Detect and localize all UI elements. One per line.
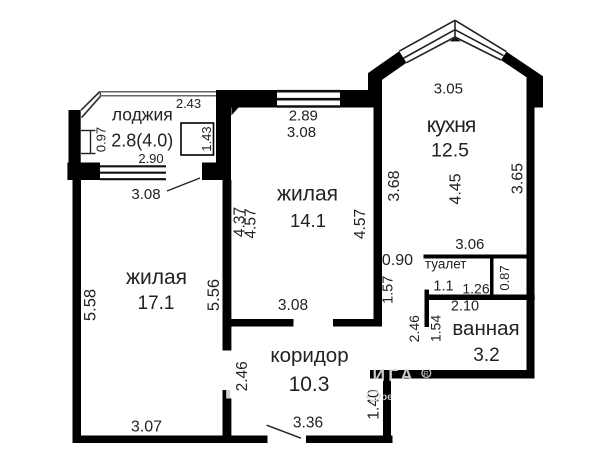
- svg-text:12.5: 12.5: [431, 140, 469, 162]
- svg-text:3.68: 3.68: [386, 170, 403, 201]
- svg-text:ванная: ванная: [452, 317, 519, 340]
- svg-text:5.56: 5.56: [205, 279, 223, 311]
- svg-text:4.45: 4.45: [448, 173, 465, 204]
- svg-text:3.2: 3.2: [473, 345, 499, 366]
- svg-text:0.87: 0.87: [497, 265, 512, 290]
- svg-text:1.54: 1.54: [428, 315, 444, 342]
- svg-text:2.89: 2.89: [289, 107, 318, 124]
- svg-text:10.3: 10.3: [289, 373, 330, 396]
- svg-text:0.97: 0.97: [94, 127, 109, 152]
- svg-text:2.8(4.0): 2.8(4.0): [111, 130, 173, 150]
- svg-text:кухня: кухня: [427, 114, 475, 137]
- svg-text:2.43: 2.43: [176, 96, 201, 111]
- svg-text:1.26: 1.26: [462, 281, 489, 297]
- svg-text:3.05: 3.05: [434, 81, 463, 98]
- svg-text:3.08: 3.08: [131, 186, 160, 203]
- svg-text:0.90: 0.90: [382, 252, 413, 269]
- svg-text:3.06: 3.06: [455, 236, 484, 253]
- svg-text:3.08: 3.08: [278, 297, 308, 314]
- svg-text:2.90: 2.90: [138, 151, 163, 166]
- svg-text:туалет: туалет: [425, 257, 467, 272]
- svg-text:2.10: 2.10: [451, 298, 479, 314]
- svg-text:17.1: 17.1: [138, 293, 175, 314]
- svg-text:1.43: 1.43: [199, 126, 214, 151]
- svg-text:5.58: 5.58: [81, 289, 99, 321]
- svg-text:жилая: жилая: [126, 266, 187, 289]
- svg-text:3.08: 3.08: [287, 124, 316, 141]
- svg-text:2.46: 2.46: [234, 361, 251, 391]
- svg-text:2.46: 2.46: [406, 315, 422, 342]
- svg-text:14.1: 14.1: [290, 210, 326, 231]
- svg-text:1.57: 1.57: [381, 276, 397, 304]
- svg-text:лоджия: лоджия: [112, 104, 173, 124]
- svg-text:жилая: жилая: [277, 182, 338, 205]
- svg-text:4.57: 4.57: [243, 208, 260, 238]
- svg-text:4.57: 4.57: [352, 209, 369, 239]
- svg-text:3.07: 3.07: [131, 419, 162, 436]
- svg-text:1.1: 1.1: [433, 279, 453, 295]
- svg-text:3.36: 3.36: [293, 415, 323, 432]
- svg-text:3.65: 3.65: [510, 163, 527, 194]
- svg-text:R: R: [423, 369, 429, 378]
- svg-text:коридор: коридор: [270, 344, 348, 367]
